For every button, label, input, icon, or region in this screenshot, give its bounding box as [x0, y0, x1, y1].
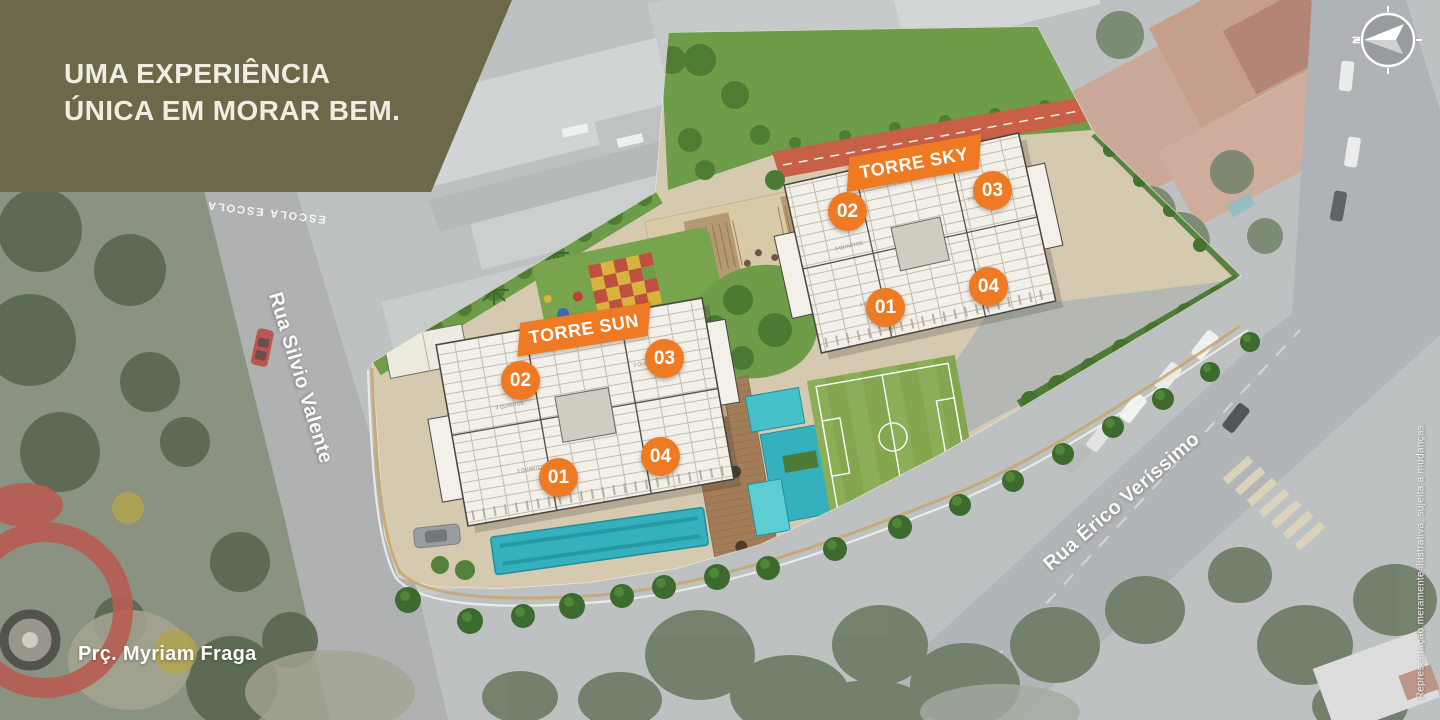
unit-badge-sun-02: 02 — [501, 361, 540, 400]
headline-banner: UMA EXPERIÊNCIA ÚNICA EM MORAR BEM. — [0, 0, 512, 192]
square-label-myriam-fraga: Prç. Myriam Fraga — [78, 643, 257, 666]
headline-text: UMA EXPERIÊNCIA ÚNICA EM MORAR BEM. — [64, 55, 400, 129]
compass-north-label: N — [1351, 36, 1363, 44]
unit-badge-sun-03: 03 — [645, 339, 684, 378]
gray-car — [413, 524, 461, 549]
unit-badge-sun-04: 04 — [641, 437, 680, 476]
elevator-core — [555, 388, 616, 443]
site-plan-marketing-image: 3 QUARTOS 3 QUARTOS 3 QUARTOS 3 QUARTOS … — [0, 0, 1440, 720]
disclaimer-text: Representação meramente ilustrativa, suj… — [1416, 425, 1427, 699]
unit-badge-sun-01: 01 — [539, 458, 578, 497]
unit-badge-sky-04: 04 — [969, 267, 1008, 306]
headline-line1: UMA EXPERIÊNCIA — [64, 55, 400, 92]
unit-badge-sky-03: 03 — [973, 171, 1012, 210]
unit-badge-sky-01: 01 — [866, 288, 905, 327]
headline-line2: ÚNICA EM MORAR BEM. — [64, 92, 400, 129]
unit-badge-sky-02: 02 — [828, 192, 867, 231]
